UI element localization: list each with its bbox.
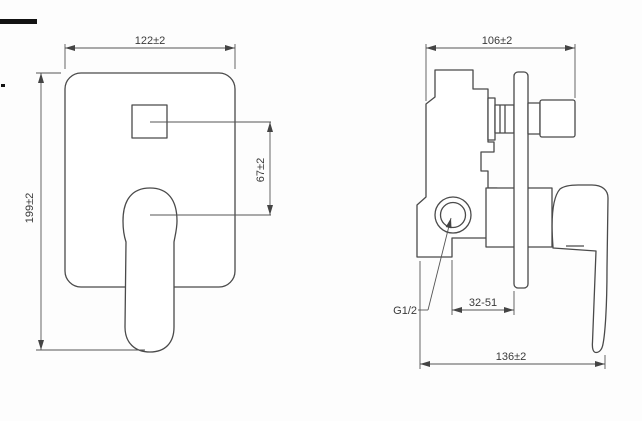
front-dim-width: 122±2	[65, 35, 235, 69]
side-port-inner-circle	[441, 203, 466, 228]
side-diverter-knob	[540, 100, 575, 137]
side-view: 106±2 32-51 136±2 G1/2	[393, 35, 608, 369]
side-thread-label: G1/2	[393, 305, 417, 317]
side-dim-install-range-label: 32-51	[469, 297, 497, 309]
side-stem-flange	[488, 98, 495, 140]
front-dim-offset-label: 67±2	[255, 158, 267, 182]
front-handle-lever	[123, 188, 177, 352]
side-dim-total-length: 136±2	[420, 261, 605, 369]
front-view: 122±2 199±2 67±2	[24, 35, 271, 352]
front-diverter-square	[132, 105, 167, 138]
technical-drawing-page: 122±2 199±2 67±2	[0, 0, 642, 421]
front-dim-height-label: 199±2	[24, 193, 36, 224]
front-dim-width-label: 122±2	[135, 35, 166, 47]
mixer-technical-drawing: 122±2 199±2 67±2	[0, 0, 642, 421]
side-dim-install-range: 32-51	[452, 260, 514, 315]
scan-artifact-bar	[0, 19, 37, 24]
side-dim-total-length-label: 136±2	[496, 351, 527, 363]
side-handle-lever	[552, 185, 608, 353]
side-dim-depth-label: 106±2	[482, 35, 513, 47]
side-stem-right	[528, 103, 540, 134]
side-plate-edge	[514, 72, 528, 288]
scan-artifact-dot	[1, 84, 5, 87]
